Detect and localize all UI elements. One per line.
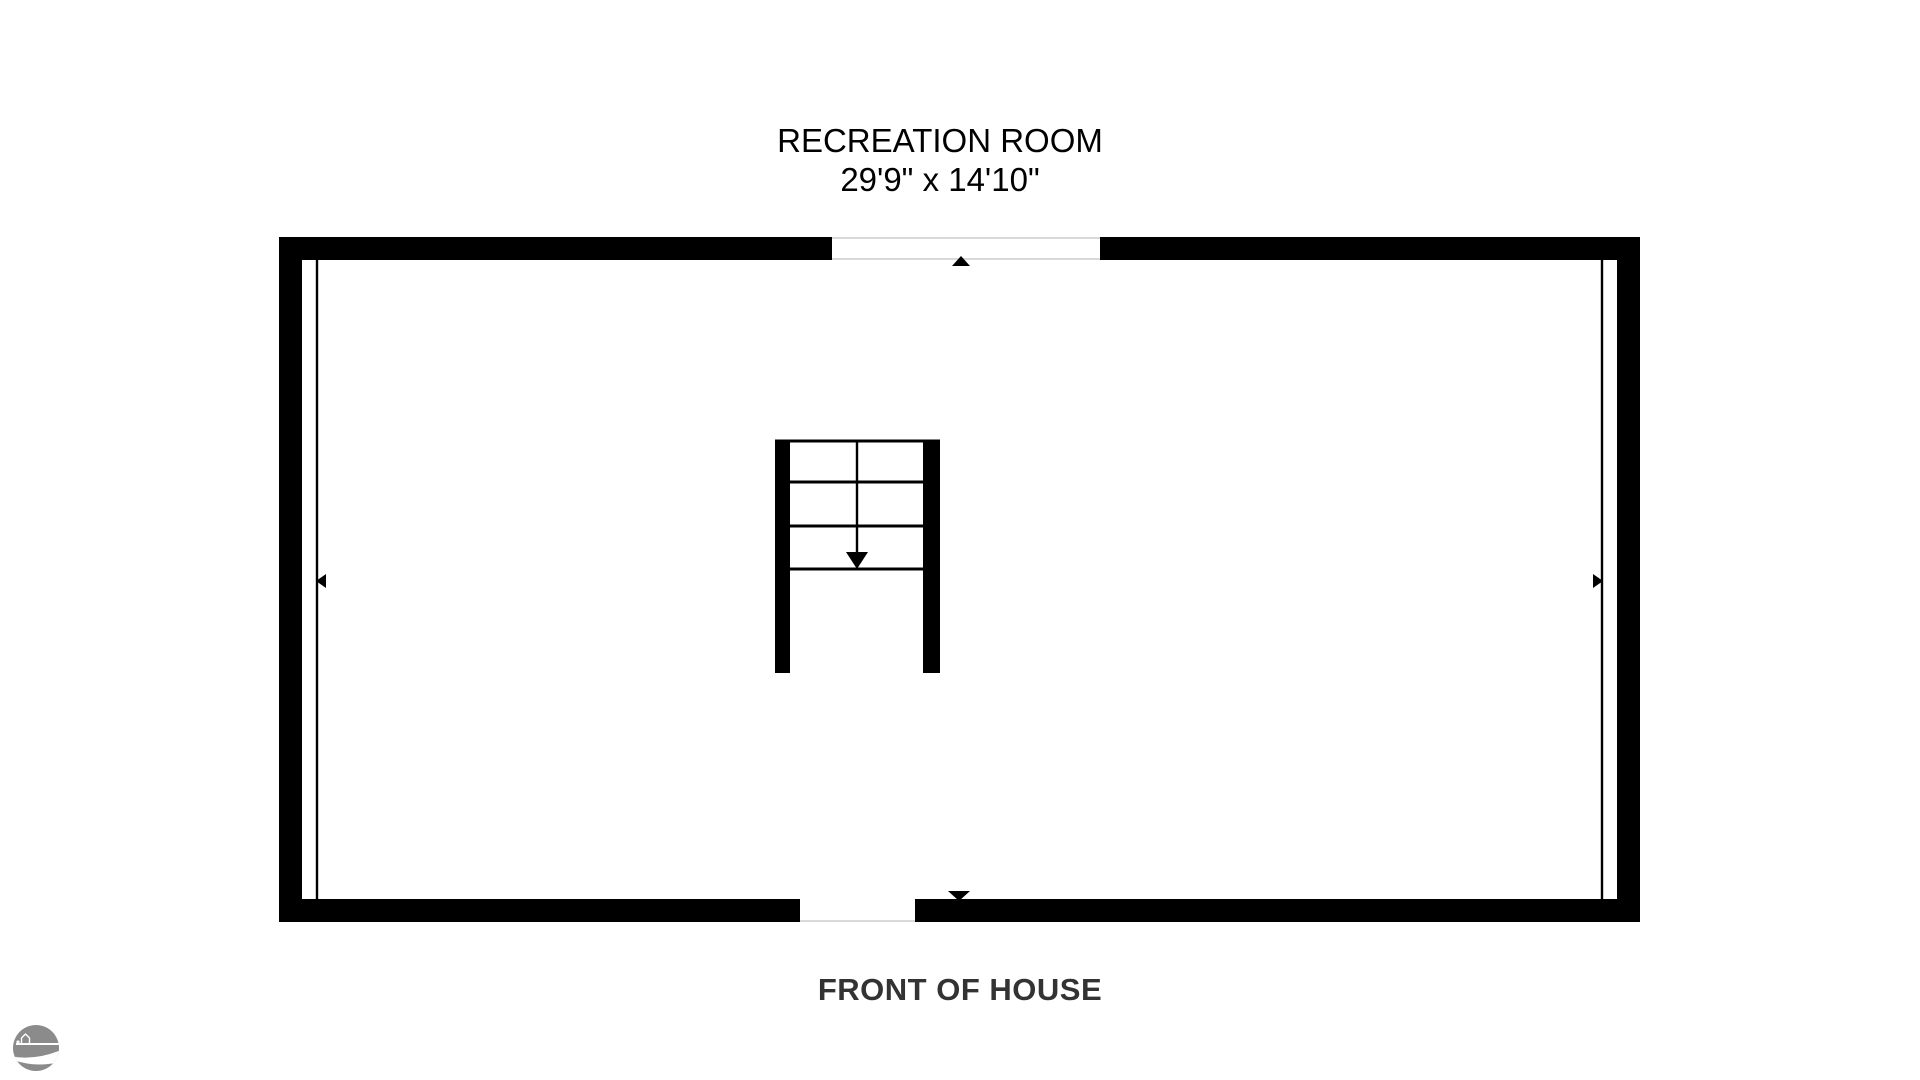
floorplan-canvas: RECREATION ROOM 29'9" x 14'10" [0,0,1920,1080]
logo-bush-dot [17,1041,20,1044]
front-of-house-label: FRONT OF HOUSE [818,972,1102,1008]
stairs-down-arrow-icon [846,552,868,569]
top-wall-left-segment [279,237,832,260]
floorplan-drawing [0,0,1920,1080]
top-wall-right-segment [1100,237,1640,260]
stair-left-wall [775,440,790,673]
bottom-wall-right-segment [915,899,1640,922]
left-wall [279,237,302,922]
bottom-wall-left-segment [279,899,800,922]
stair-right-wall [923,440,940,673]
right-wall [1617,237,1640,922]
logo-horizon-line [16,1043,59,1045]
house-road-logo [13,1025,59,1071]
up-arrow-icon [952,256,970,266]
staircase [775,440,940,673]
